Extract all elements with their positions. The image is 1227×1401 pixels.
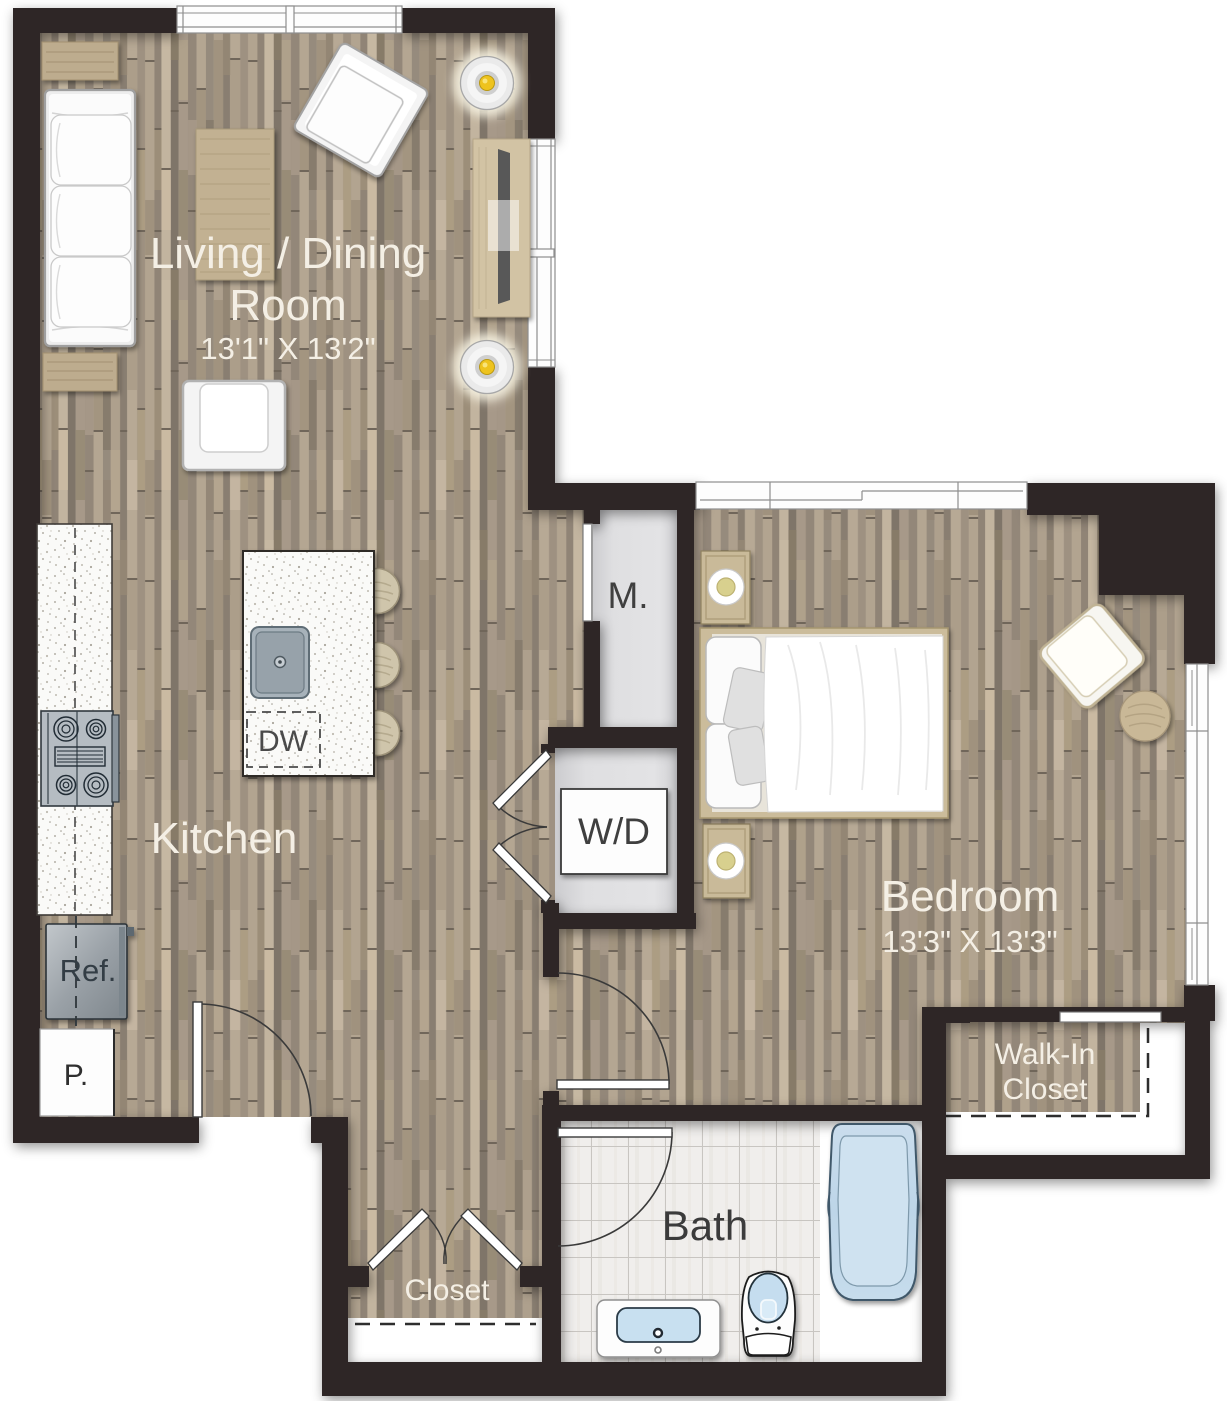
svg-text:DW: DW (258, 725, 309, 758)
svg-text:Ref.: Ref. (60, 953, 117, 988)
svg-text:Bath: Bath (662, 1202, 748, 1249)
svg-text:W/D: W/D (578, 811, 650, 852)
svg-text:Room: Room (229, 281, 346, 330)
svg-text:13'3" X 13'3": 13'3" X 13'3" (882, 924, 1057, 959)
svg-text:Walk-In: Walk-In (995, 1038, 1096, 1071)
svg-text:Bedroom: Bedroom (881, 872, 1060, 921)
svg-text:13'1" X 13'2": 13'1" X 13'2" (200, 331, 375, 366)
svg-text:Closet: Closet (1002, 1073, 1088, 1106)
svg-text:M.: M. (607, 575, 648, 616)
svg-text:Closet: Closet (404, 1274, 490, 1307)
svg-text:Living / Dining: Living / Dining (150, 229, 426, 278)
svg-text:P.: P. (64, 1059, 88, 1092)
svg-text:Kitchen: Kitchen (151, 814, 298, 863)
